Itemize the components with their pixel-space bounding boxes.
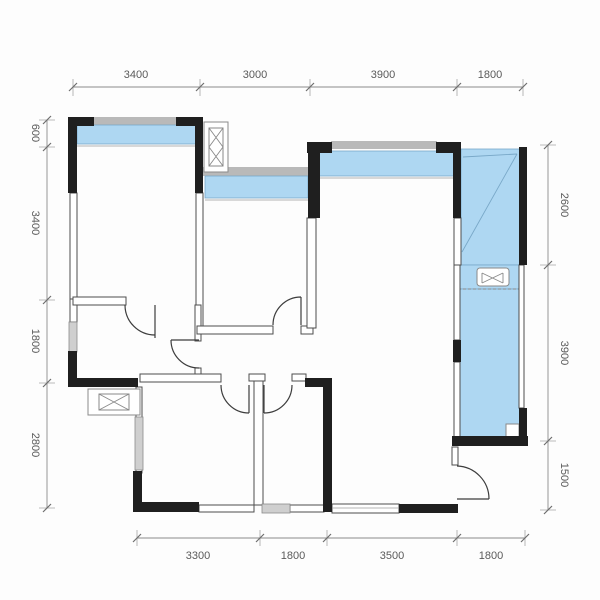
door-arc-bath1-top	[125, 305, 155, 338]
dim-label: 1800	[479, 550, 503, 562]
wall-segment	[68, 378, 138, 387]
wall-segment	[195, 117, 203, 193]
door-arc-bath2	[264, 385, 292, 413]
dimension-top: 3400 3000 3900 1800	[69, 69, 527, 96]
wall-kitchen-bottom	[197, 326, 273, 334]
dim-label: 3900	[558, 341, 570, 365]
dim-label: 600	[29, 124, 41, 142]
dim-label: 1800	[281, 550, 305, 562]
door-arc-balcony-room	[457, 466, 489, 499]
wall-segment	[453, 144, 461, 218]
dim-label: 3900	[371, 69, 395, 81]
wall-segment	[323, 382, 332, 512]
wall-bath2-top-right	[292, 374, 306, 381]
dim-label: 1800	[29, 329, 41, 353]
wall-bath2-bottom	[290, 505, 324, 512]
floor-plan-canvas: 3400 3000 3900 1800 3300 1800 3500 1800 …	[0, 0, 600, 600]
wall-bedroom-bl-bottom	[199, 505, 254, 512]
wall-bedroom1-left	[70, 193, 77, 299]
wall-balcony-left-upper	[454, 265, 460, 340]
kitchen-window	[205, 176, 308, 198]
wall-segment	[68, 117, 77, 193]
dim-label: 1800	[478, 69, 502, 81]
window-bath2-bottom	[262, 504, 290, 513]
dim-label: 3000	[243, 69, 267, 81]
door-arc-bedroom-bl	[221, 385, 249, 413]
wall-bath1-right-upper	[195, 305, 201, 341]
wall-balcony-left-lower	[454, 362, 460, 437]
dim-label: 1500	[558, 463, 570, 487]
dim-label: 3300	[186, 550, 210, 562]
shaft-inner	[209, 128, 223, 166]
wall-hallway-bottom	[140, 374, 221, 382]
door-arc-kitchen	[273, 297, 301, 325]
wall-below-balcony-stub	[452, 447, 458, 465]
window-outer-bar	[331, 141, 437, 149]
wall-segment	[133, 502, 199, 512]
floor-plan-drawing: 3400 3000 3900 1800 3300 1800 3500 1800 …	[0, 0, 600, 600]
balcony-railing-right	[519, 265, 524, 408]
flue-shaft-icon	[204, 122, 228, 172]
window-bedroom-bl-left	[135, 417, 143, 470]
dim-label: 3400	[29, 211, 41, 235]
wall-bath2-bedroom-divider	[254, 381, 263, 505]
corner-bay-window	[461, 149, 520, 265]
dim-label: 2600	[558, 193, 570, 217]
wall-between-doors	[249, 374, 265, 381]
bay-window-top-left	[77, 125, 198, 144]
window-bedroom-br-bottom	[332, 504, 399, 513]
wall-segment	[519, 408, 527, 446]
dim-label: 2800	[29, 433, 41, 457]
living-room-window	[316, 151, 454, 176]
dim-label: 3400	[124, 69, 148, 81]
wall-segment	[453, 340, 461, 362]
ac-unit-icon	[477, 268, 509, 286]
wall-segment	[452, 436, 528, 446]
dimension-right: 2600 3900 1500	[540, 141, 570, 514]
balcony-corner-notch	[506, 424, 519, 437]
window-bath1-left	[69, 322, 77, 352]
wall-segment	[399, 504, 458, 513]
duct-shaft-icon	[88, 389, 140, 415]
dimension-bottom: 3300 1800 3500 1800	[133, 530, 529, 562]
wall-livingroom-left-lower	[307, 218, 316, 328]
door-arc-bath1-side	[171, 340, 199, 368]
balcony	[458, 289, 521, 437]
dim-extensions	[73, 79, 523, 96]
wall-segment	[308, 142, 320, 218]
dimension-left: 600 3400 1800 2800	[29, 116, 55, 512]
wall-segment	[519, 147, 527, 265]
dim-label: 3500	[380, 550, 404, 562]
window-outer-bar	[93, 117, 177, 125]
window-livingroom-to-bay	[454, 218, 461, 265]
wall-bath1-top	[73, 297, 126, 305]
